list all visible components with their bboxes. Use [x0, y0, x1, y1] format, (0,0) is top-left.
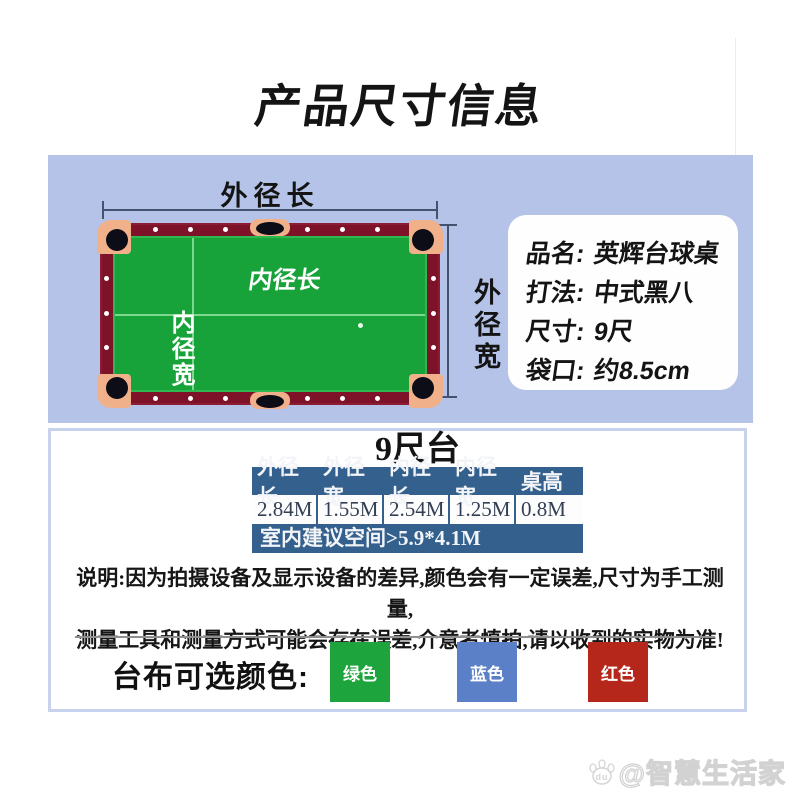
corner-pocket — [409, 220, 443, 254]
info-label: 品名: — [523, 235, 587, 274]
swatch-label: 蓝色 — [470, 660, 504, 685]
info-label: 袋口: — [523, 352, 587, 391]
product-size-infographic: 产品尺寸信息 外径长 外径宽 内径长 内径宽 — [0, 0, 800, 800]
info-row-style: 打法: 中式黑八 — [526, 274, 738, 313]
outer-length-label: 外径长 — [103, 174, 437, 213]
corner-pocket — [97, 220, 131, 254]
outer-length-dimension-line — [103, 209, 437, 211]
dimension-tick — [102, 201, 104, 219]
rail-diamond — [104, 311, 109, 316]
spec-table-footer: 室内建议空间>5.9*4.1M — [252, 524, 583, 553]
rail-diamond — [375, 227, 380, 232]
spec-value-cell: 1.55M — [318, 495, 384, 524]
inner-length-label: 内径长 — [223, 260, 348, 295]
cloth-color-swatch-blue: 蓝色 — [457, 642, 517, 702]
cloth-color-label: 台布可选颜色: — [112, 652, 309, 696]
page-title: 产品尺寸信息 — [0, 70, 800, 136]
pocket-hole — [412, 229, 434, 251]
pocket-hole — [256, 222, 284, 235]
spec-value-cell: 2.54M — [384, 495, 450, 524]
disclaimer-line-1: 说明:因为拍摄设备及显示设备的差异,颜色会有一定误差,尺寸为手工测量, — [64, 563, 736, 625]
rail-diamond — [431, 276, 436, 281]
spec-value-cell: 2.84M — [252, 495, 318, 524]
info-value: 英辉台球桌 — [592, 235, 722, 274]
spec-header-cell: 桌高 — [516, 466, 582, 496]
info-value: 中式黑八 — [592, 274, 697, 313]
pocket-hole — [106, 229, 128, 251]
rail-diamond — [431, 311, 436, 316]
info-value: 9尺 — [592, 313, 636, 352]
corner-pocket — [97, 374, 131, 408]
info-value: 约8.5cm — [592, 352, 693, 391]
info-row-size: 尺寸: 9尺 — [526, 313, 738, 352]
rail-diamond — [153, 396, 158, 401]
middle-pocket — [250, 392, 290, 409]
rail-diamond — [305, 227, 310, 232]
rail-diamond — [305, 396, 310, 401]
watermark: du @智慧生活家 — [587, 752, 786, 791]
section-divider — [75, 636, 715, 638]
cloth-color-swatch-green: 绿色 — [330, 642, 390, 702]
rail-diamond — [340, 227, 345, 232]
rail-diamond — [340, 396, 345, 401]
rail-diamond — [223, 396, 228, 401]
watermark-text: @智慧生活家 — [619, 752, 786, 791]
spec-value-cell: 1.25M — [450, 495, 516, 524]
info-label: 尺寸: — [523, 313, 587, 352]
spec-value-cell: 0.8M — [516, 495, 582, 524]
paw-icon: du — [587, 757, 617, 787]
rail-diamond — [153, 227, 158, 232]
corner-pocket — [409, 374, 443, 408]
page-edge-line — [735, 38, 736, 155]
pool-table-diagram: 内径长 内径宽 — [100, 223, 440, 405]
outer-width-label: 外径宽 — [466, 278, 505, 374]
rail-diamond — [104, 345, 109, 350]
inner-width-label: 内径宽 — [163, 310, 198, 388]
center-line — [115, 314, 425, 316]
cloth-color-swatch-red: 红色 — [588, 642, 648, 702]
rail-diamond — [223, 227, 228, 232]
rail-diamond — [375, 396, 380, 401]
pocket-hole — [106, 377, 128, 399]
pocket-hole — [412, 377, 434, 399]
spot-dot — [358, 323, 363, 328]
rail-diamond — [188, 227, 193, 232]
middle-pocket — [250, 219, 290, 236]
rail-diamond — [104, 276, 109, 281]
info-row-name: 品名: 英辉台球桌 — [526, 235, 738, 274]
product-info-card: 品名: 英辉台球桌 打法: 中式黑八 尺寸: 9尺 袋口: 约8.5cm — [508, 215, 738, 390]
paw-icon-text: du — [595, 772, 608, 782]
rail-diamond — [431, 345, 436, 350]
rail-diamond — [188, 396, 193, 401]
outer-width-dimension-line — [447, 225, 449, 398]
swatch-label: 绿色 — [343, 660, 377, 685]
page-title-text: 产品尺寸信息 — [251, 70, 548, 136]
spec-section: 9尺台 外径长 外径宽 内径长 内径宽 桌高 2.84M 1.55M 2.54M… — [252, 433, 583, 553]
spec-table-value-row: 2.84M 1.55M 2.54M 1.25M 0.8M — [252, 495, 583, 524]
info-row-pocket: 袋口: 约8.5cm — [526, 352, 738, 391]
spec-table-header-row: 外径长 外径宽 内径长 内径宽 桌高 — [252, 467, 583, 495]
swatch-label: 红色 — [601, 660, 635, 685]
dimension-tick — [439, 224, 457, 226]
table-felt: 内径长 内径宽 — [113, 236, 427, 392]
info-label: 打法: — [523, 274, 587, 313]
dimension-tick — [436, 201, 438, 219]
pocket-hole — [256, 395, 284, 408]
